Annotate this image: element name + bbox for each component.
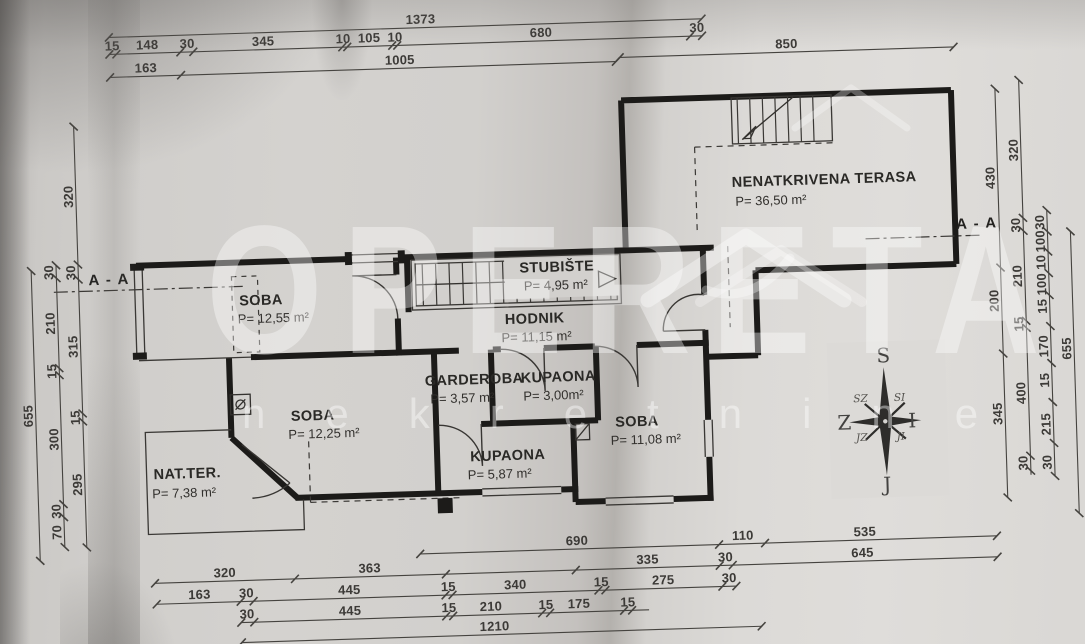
dimension-label: 363 (358, 560, 381, 576)
dimension-label: 30 (239, 606, 254, 621)
room-name: KUPAONA (470, 447, 546, 465)
dimension-label: 30 (1039, 455, 1054, 470)
dimension-label: 215 (1038, 413, 1054, 436)
dimension-label: 15 (68, 410, 83, 425)
dimension-label: 105 (358, 30, 381, 46)
dimension-label: 175 (567, 596, 590, 612)
dimension-label: 655 (20, 405, 36, 428)
room-area: P= 7,38 m² (152, 484, 217, 501)
dimension-label: 850 (775, 36, 798, 52)
dimension-label: 300 (46, 428, 62, 451)
dimension-label: 320 (1005, 139, 1021, 162)
dimension-chain: 1373 (104, 3, 705, 42)
dimension-label: 210 (42, 312, 58, 335)
dimension-label: 1210 (479, 618, 509, 634)
dimension-label: 70 (49, 525, 64, 540)
dimension-label: 340 (504, 577, 527, 593)
dimension-label: 345 (252, 33, 275, 49)
dimension-label: 335 (636, 551, 659, 567)
room-name: NAT.TER. (153, 465, 221, 483)
dimension-label: 30 (239, 585, 254, 600)
dimension-label: 15 (44, 364, 59, 379)
dimension-label: 30 (41, 265, 56, 280)
stair-treads-terrace (737, 95, 814, 143)
dimension-label: 30 (63, 265, 78, 280)
floor-plan-photo: SJZISZSIJZJI A - A A - A 137315148303451… (0, 0, 1085, 644)
dimension-label: 275 (652, 572, 675, 588)
dimension-label: 30 (1015, 455, 1030, 470)
dimension-label: 430 (982, 166, 998, 189)
dimension-chain: 1210 (237, 610, 765, 644)
dimension-label: 163 (188, 587, 211, 603)
dimension-label: 10 (335, 31, 350, 46)
dimension-label: 535 (853, 524, 876, 540)
dimension-label: 15 (441, 600, 456, 615)
dimension-label: 15 (441, 579, 456, 594)
dimension-label: 15 (104, 38, 119, 53)
dimension-chain: 690110535 (416, 520, 1001, 558)
dimension-label: 10 (387, 29, 402, 44)
dimension-label: 210 (480, 598, 503, 614)
dimension-chain: 655 (16, 267, 44, 565)
watermark-text: OPERETA (206, 198, 1066, 381)
dimension-label: 15 (620, 594, 635, 609)
dimension-label: 148 (136, 37, 159, 53)
dimension-label: 30 (48, 504, 63, 519)
dimension-label: 445 (338, 582, 361, 598)
dimension-label: 680 (530, 25, 553, 41)
dimension-label: 110 (732, 527, 754, 543)
dimension-label: 30 (689, 20, 704, 35)
dimension-label: 15 (538, 597, 553, 612)
dimension-label: 315 (65, 335, 81, 358)
dimension-label: 295 (70, 473, 86, 496)
dimension-label: 15 (594, 574, 609, 589)
section-label-left: A - A (88, 271, 130, 289)
dimension-label: 645 (851, 545, 874, 561)
dimension-label: 163 (134, 60, 157, 76)
dimension-label: 690 (566, 533, 589, 549)
room-area: P= 5,87 m² (468, 465, 533, 482)
dimension-label: 30 (179, 36, 194, 51)
dimension-label: 1373 (405, 11, 435, 27)
dimension-chain: 850 (615, 31, 957, 62)
dimension-label: 30 (718, 549, 733, 564)
pillar (437, 498, 452, 513)
dimension-label: 30 (721, 570, 736, 585)
dimension-label: 320 (213, 565, 236, 581)
dimension-label: 445 (339, 603, 362, 619)
dimension-label: 1005 (385, 52, 415, 68)
dimension-chain: 30210153003070 (41, 261, 69, 551)
dimension-label: 320 (60, 185, 76, 208)
watermark-subtext: nekretnine (242, 390, 1038, 438)
